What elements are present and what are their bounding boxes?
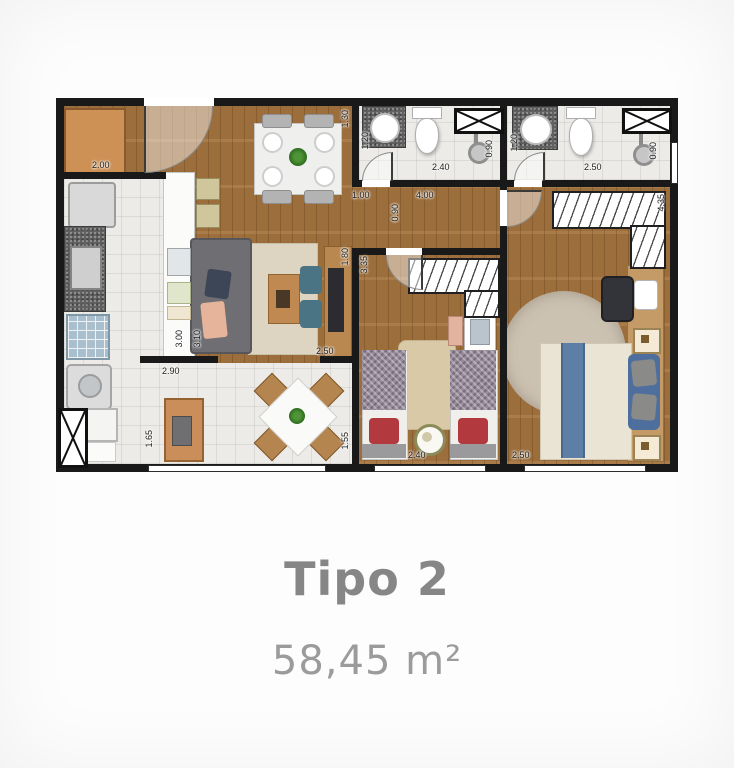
chair bbox=[262, 114, 292, 128]
bed-footboard bbox=[450, 444, 496, 458]
window bbox=[148, 465, 326, 472]
shaft bbox=[58, 408, 88, 468]
dimension-label: 2.00 bbox=[92, 160, 110, 170]
nightstand-knob bbox=[641, 335, 649, 343]
bed-footboard bbox=[362, 444, 406, 458]
dimension-label: 0.90 bbox=[484, 140, 494, 158]
toilet-icon bbox=[415, 118, 439, 154]
plan-caption: Tipo 2 58,45 m² bbox=[0, 552, 734, 684]
wall-bed2-top bbox=[352, 248, 500, 255]
dimension-label: 1.20 bbox=[360, 132, 370, 150]
dimension-label: 1.20 bbox=[509, 134, 519, 152]
counter-sink bbox=[167, 248, 191, 276]
sofa-cushion bbox=[200, 301, 228, 339]
pillow bbox=[631, 359, 658, 387]
wall-living-dining-right bbox=[320, 356, 359, 363]
armchair bbox=[300, 266, 322, 294]
sink-icon bbox=[520, 114, 552, 145]
master-door-gap bbox=[500, 190, 507, 226]
fridge bbox=[68, 182, 116, 228]
lamp bbox=[634, 280, 658, 310]
wall-living-dining-left bbox=[140, 356, 218, 363]
stove bbox=[66, 314, 110, 360]
sofa-cushion bbox=[204, 268, 232, 299]
pillow bbox=[458, 418, 488, 444]
nightstand-knob bbox=[641, 442, 649, 450]
double-bed bbox=[540, 343, 632, 460]
plate bbox=[314, 132, 335, 153]
dimension-label: 4.35 bbox=[656, 194, 666, 212]
bed2-door-gap bbox=[386, 248, 422, 255]
bed-blanket bbox=[362, 350, 406, 410]
washer-door bbox=[78, 374, 102, 398]
shower-niche bbox=[622, 108, 672, 134]
plant-icon bbox=[289, 148, 307, 166]
floor-plan: 2.00 1.30 1.20 2.40 0.90 1.00 4.00 0.90 … bbox=[56, 98, 678, 472]
bed-runner bbox=[561, 343, 585, 458]
dimension-label: 2.50 bbox=[512, 450, 530, 460]
counter-item bbox=[167, 306, 191, 320]
dimension-label: 2.40 bbox=[432, 162, 450, 172]
dimension-label: 0.90 bbox=[648, 142, 658, 160]
sink-icon bbox=[370, 113, 400, 143]
window bbox=[671, 142, 678, 184]
dimension-label: 3.10 bbox=[192, 330, 202, 348]
wall-kitchen-top bbox=[56, 172, 166, 179]
dimension-label: 3.00 bbox=[174, 330, 184, 348]
pillow bbox=[631, 393, 657, 421]
wall-bath1-left bbox=[352, 98, 359, 187]
plate bbox=[262, 166, 283, 187]
plan-area-value: 58,45 m² bbox=[0, 638, 734, 684]
laundry-tub bbox=[84, 408, 118, 442]
wall-cabinet bbox=[196, 178, 220, 200]
pillow bbox=[369, 418, 399, 444]
dimension-label: 1.80 bbox=[340, 248, 350, 266]
dimension-label: 0.90 bbox=[390, 204, 400, 222]
mirror bbox=[470, 319, 490, 345]
dimension-label: 1.00 bbox=[352, 190, 370, 200]
bathroom1-door-gap bbox=[362, 180, 390, 187]
dimension-label: 2.50 bbox=[316, 346, 334, 356]
toilet-icon bbox=[569, 118, 593, 156]
dimension-label: 2.50 bbox=[584, 162, 602, 172]
chair bbox=[304, 114, 334, 128]
buffet-appliance bbox=[172, 416, 192, 446]
plate bbox=[262, 132, 283, 153]
wardrobe bbox=[552, 191, 666, 229]
tv-icon bbox=[328, 268, 344, 332]
plate bbox=[314, 166, 335, 187]
dimension-label: 1.55 bbox=[340, 432, 350, 450]
window bbox=[524, 465, 646, 472]
dimension-label: 1.65 bbox=[144, 430, 154, 448]
wardrobe bbox=[464, 290, 500, 318]
dimension-label: 4.00 bbox=[416, 190, 434, 200]
wardrobe bbox=[630, 225, 666, 269]
counter-item bbox=[167, 282, 191, 304]
shower-niche bbox=[454, 108, 504, 134]
dimension-label: 2.90 bbox=[162, 366, 180, 376]
dimension-label: 3.35 bbox=[359, 256, 369, 274]
dresser bbox=[448, 316, 463, 346]
plant-icon bbox=[289, 408, 305, 424]
dimension-label: 1.30 bbox=[340, 110, 350, 128]
window bbox=[374, 465, 486, 472]
plan-type-title: Tipo 2 bbox=[0, 552, 734, 606]
kitchen-sink bbox=[70, 246, 102, 290]
desk-chair bbox=[601, 276, 634, 322]
dimension-label: 2.40 bbox=[408, 450, 426, 460]
coffee-table-tray bbox=[276, 290, 290, 308]
chair bbox=[304, 190, 334, 204]
laundry-shelf bbox=[84, 442, 116, 462]
wall-bath-bottom bbox=[352, 180, 670, 187]
bathroom2-door-gap bbox=[514, 180, 542, 187]
entry-door-gap bbox=[144, 98, 214, 106]
chair bbox=[262, 190, 292, 204]
bed-blanket bbox=[450, 350, 496, 410]
stool bbox=[422, 432, 432, 442]
wall-cabinet bbox=[196, 204, 220, 228]
floor-plan-page: 2.00 1.30 1.20 2.40 0.90 1.00 4.00 0.90 … bbox=[0, 0, 734, 768]
armchair bbox=[300, 300, 322, 328]
